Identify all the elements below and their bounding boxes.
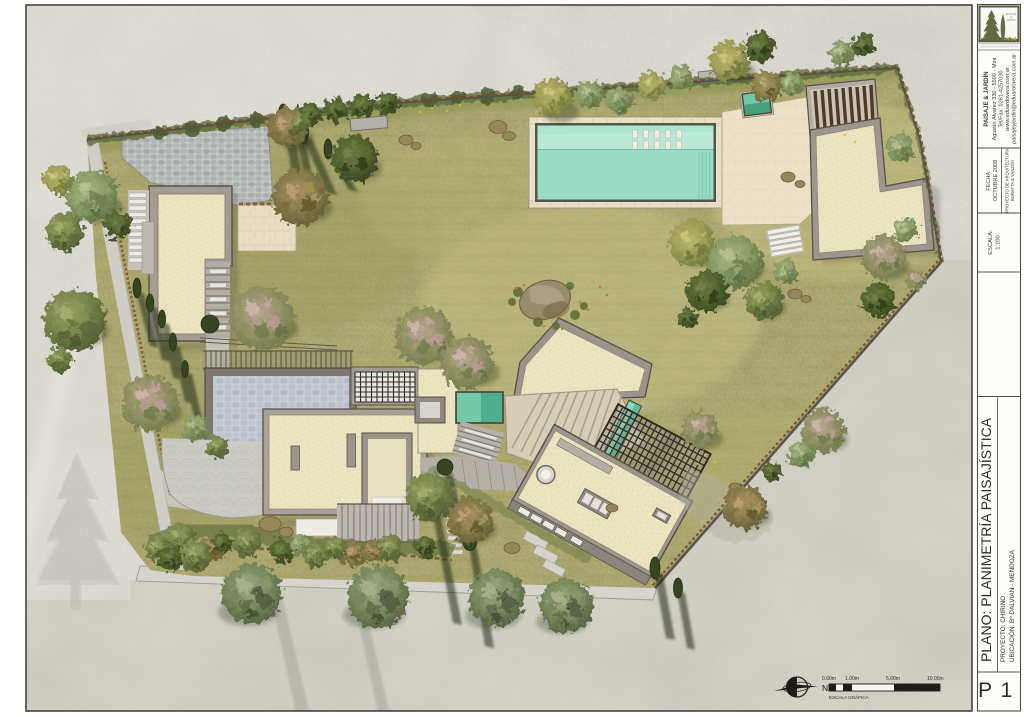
svg-text:Agustín Álvarez 330 - 5500 - M: Agustín Álvarez 330 - 5500 - Mza <box>991 57 998 141</box>
svg-text:UBICACIÓN: Bº DALVIAN - MENDOZ: UBICACIÓN: Bº DALVIAN - MENDOZA <box>1007 549 1016 662</box>
svg-text:ESCALA:: ESCALA: <box>988 230 994 255</box>
svg-text:Tel/Fax: 0261-4257030: Tel/Fax: 0261-4257030 <box>999 70 1005 127</box>
svg-text:N: N <box>822 683 828 693</box>
svg-text:5.00m: 5.00m <box>886 676 900 682</box>
svg-text:PROYECTO: CHIRINO: PROYECTO: CHIRINO <box>1000 596 1007 662</box>
svg-text:PROYECTO DE ARQUITECTURA: PROYECTO DE ARQUITECTURA <box>1005 148 1010 213</box>
svg-text:www.eduardovera.com.ar: www.eduardovera.com.ar <box>1005 66 1011 131</box>
svg-text:0.00m: 0.00m <box>822 676 836 682</box>
svg-text:OCTUBRE 2008: OCTUBRE 2008 <box>993 160 999 201</box>
svg-text:1:100: 1:100 <box>996 235 1002 250</box>
svg-text:JARDIN: JARDIN <box>1006 18 1015 22</box>
svg-text:FECHA:: FECHA: <box>986 170 992 191</box>
svg-text:BORATTA & YANZÓN: BORATTA & YANZÓN <box>1010 160 1015 201</box>
svg-text:P 1: P 1 <box>978 679 1014 702</box>
svg-text:10.00m: 10.00m <box>927 676 944 682</box>
svg-text:ESCALA GRÁFICA: ESCALA GRÁFICA <box>829 694 870 700</box>
svg-text:PAISAJE & JARDÍN: PAISAJE & JARDÍN <box>982 71 990 126</box>
svg-text:PLANO: PLANIMETRÍA PAISAJÍSTIC: PLANO: PLANIMETRÍA PAISAJÍSTICA <box>978 417 994 662</box>
svg-text:1.00m: 1.00m <box>845 676 859 682</box>
svg-text:paisajeyjardin@eduardovera.com: paisajeyjardin@eduardovera.com.ar <box>1012 53 1018 145</box>
